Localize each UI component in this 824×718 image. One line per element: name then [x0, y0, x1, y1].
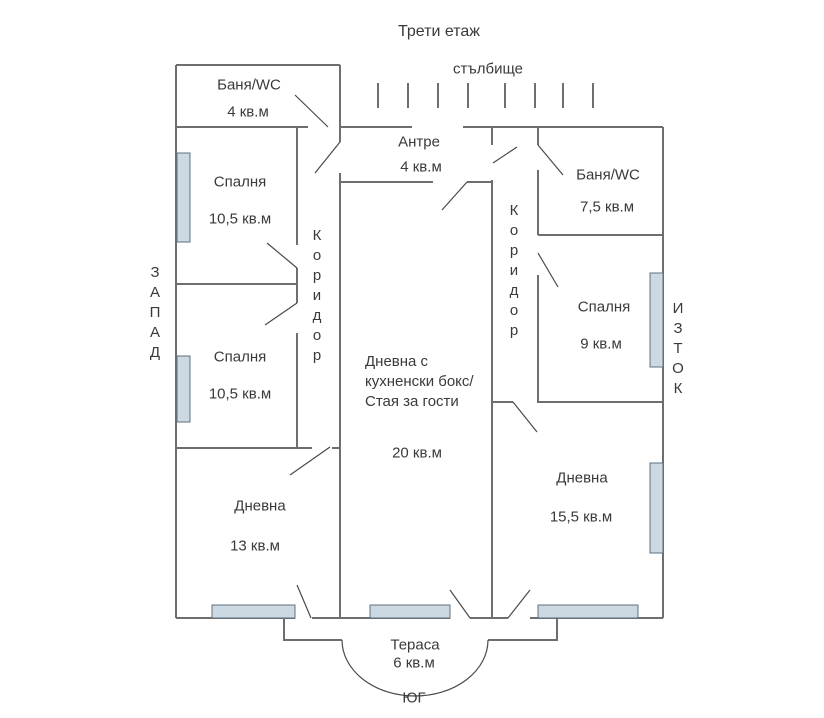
door-terrace-center-left-leaf	[450, 590, 470, 618]
window-south-left	[212, 605, 295, 618]
window-west-2	[177, 356, 190, 422]
stair-treads	[378, 83, 593, 108]
compass-east-label: ИЗТОК	[671, 299, 685, 399]
compass-south-label: ЮГ	[402, 689, 425, 706]
door-entry-to-living-center	[442, 182, 467, 210]
door-bedroom-left-1	[267, 243, 297, 268]
door-living-left	[290, 447, 330, 475]
room-area-bath-top-left: 4 кв.м	[227, 103, 269, 120]
door-living-right	[513, 402, 537, 432]
window-east-1	[650, 273, 663, 367]
compass-west-label: ЗАПАД	[148, 263, 162, 363]
room-name-living-left: Дневна	[234, 497, 285, 514]
room-name-bath-right: Баня/WC	[576, 166, 640, 183]
stairwell-label: стълбище	[453, 60, 523, 77]
window-east-2	[650, 463, 663, 553]
window-west-1	[177, 153, 190, 242]
room-name-bedroom-left-2: Спалня	[214, 348, 266, 365]
door-bedroom-right	[538, 253, 558, 287]
room-name-living-center: Дневна с кухненски бокс/ Стая за гости	[365, 352, 474, 412]
room-name-bedroom-right: Спалня	[578, 298, 630, 315]
room-area-bedroom-left-2: 10,5 кв.м	[209, 385, 271, 402]
room-name-bath-top-left: Баня/WC	[217, 76, 281, 93]
room-area-entry: 4 кв.м	[400, 158, 442, 175]
door-entry-to-right-corridor	[493, 147, 517, 163]
room-area-bedroom-right: 9 кв.м	[580, 335, 622, 352]
door-terrace-center-right-leaf	[508, 590, 530, 618]
door-terrace-left	[297, 585, 311, 618]
room-area-living-center: 20 кв.м	[392, 444, 442, 461]
door-bedroom-left-2	[265, 303, 297, 325]
staircase-icon	[378, 83, 593, 108]
room-name-bedroom-left-1: Спалня	[214, 173, 266, 190]
corridor-left-label: Коридор	[310, 226, 324, 366]
door-bath-top-left	[295, 95, 328, 127]
room-area-living-right: 15,5 кв.м	[550, 508, 612, 525]
room-area-terrace: 6 кв.м	[393, 654, 435, 671]
page-title: Трети етаж	[398, 23, 480, 41]
room-area-bedroom-left-1: 10,5 кв.м	[209, 210, 271, 227]
corridor-right-label: Коридор	[507, 201, 521, 341]
room-name-terrace: Тераса	[390, 636, 439, 653]
window-south-center	[370, 605, 450, 618]
floor-plan: Трети етаж стълбище Баня/WC 4 кв.м Антре…	[0, 0, 824, 718]
room-name-entry: Антре	[398, 133, 440, 150]
door-entry-to-left-corridor	[315, 142, 340, 173]
room-name-living-right: Дневна	[556, 469, 607, 486]
door-bath-right	[538, 145, 563, 175]
room-area-living-left: 13 кв.м	[230, 537, 280, 554]
window-south-right	[538, 605, 638, 618]
room-area-bath-right: 7,5 кв.м	[580, 198, 634, 215]
